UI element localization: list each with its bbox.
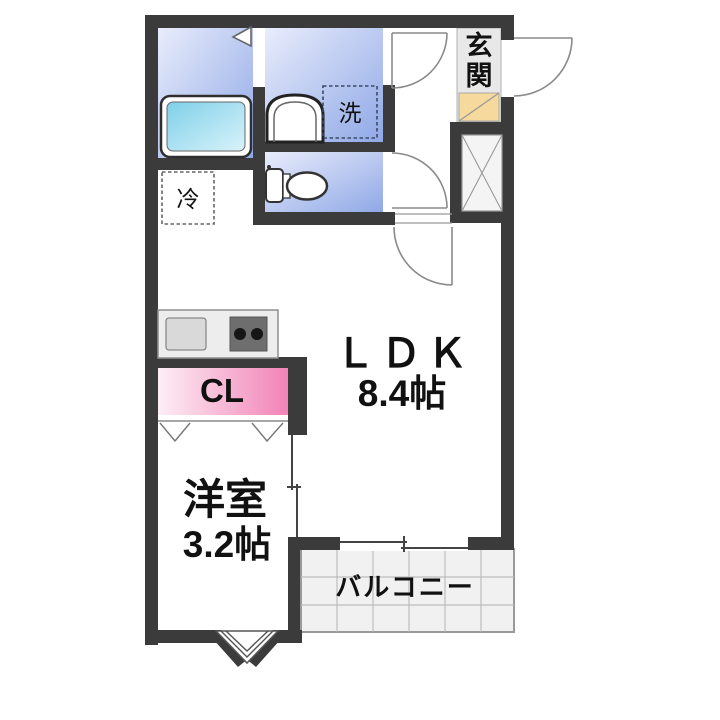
entrance-door-icon (514, 38, 572, 96)
closet-label: CL (200, 372, 244, 409)
balcony-sliding-window-icon (340, 536, 468, 552)
fridge-label: 冷 (177, 186, 200, 212)
floorplan-svg: ＬＤＫ 8.4帖 洋室 3.2帖 バルコニー 玄 関 CL 洗 冷 (0, 0, 720, 720)
entrance-label-char2: 関 (466, 61, 493, 91)
kitchen-counter (158, 310, 278, 358)
pipe-shaft (462, 135, 502, 211)
ldk-label: ＬＤＫ (335, 332, 473, 376)
washer-label: 洗 (339, 100, 362, 126)
balcony-label: バルコニー (335, 572, 474, 602)
western-room-size: 3.2帖 (183, 524, 271, 565)
hall-opening-lines (395, 214, 452, 223)
western-room-sliding-door-icon (287, 435, 301, 537)
burner (251, 328, 263, 340)
floorplan-canvas: ＬＤＫ 8.4帖 洋室 3.2帖 バルコニー 玄 関 CL 洗 冷 (0, 0, 720, 720)
washroom-door-icon (392, 33, 447, 88)
folding-door-icon (252, 423, 283, 441)
western-room-label: 洋室 (183, 476, 267, 523)
bathtub-icon (161, 96, 251, 157)
kitchen-sink (166, 318, 206, 350)
folding-door-icon (160, 423, 190, 441)
hall-door-icon (394, 227, 452, 285)
washbasin-icon (267, 95, 323, 142)
toilet-door-icon (392, 153, 447, 208)
ldk-size: 8.4帖 (358, 373, 446, 414)
entrance-label-char1: 玄 (466, 30, 493, 61)
burner (234, 328, 246, 340)
